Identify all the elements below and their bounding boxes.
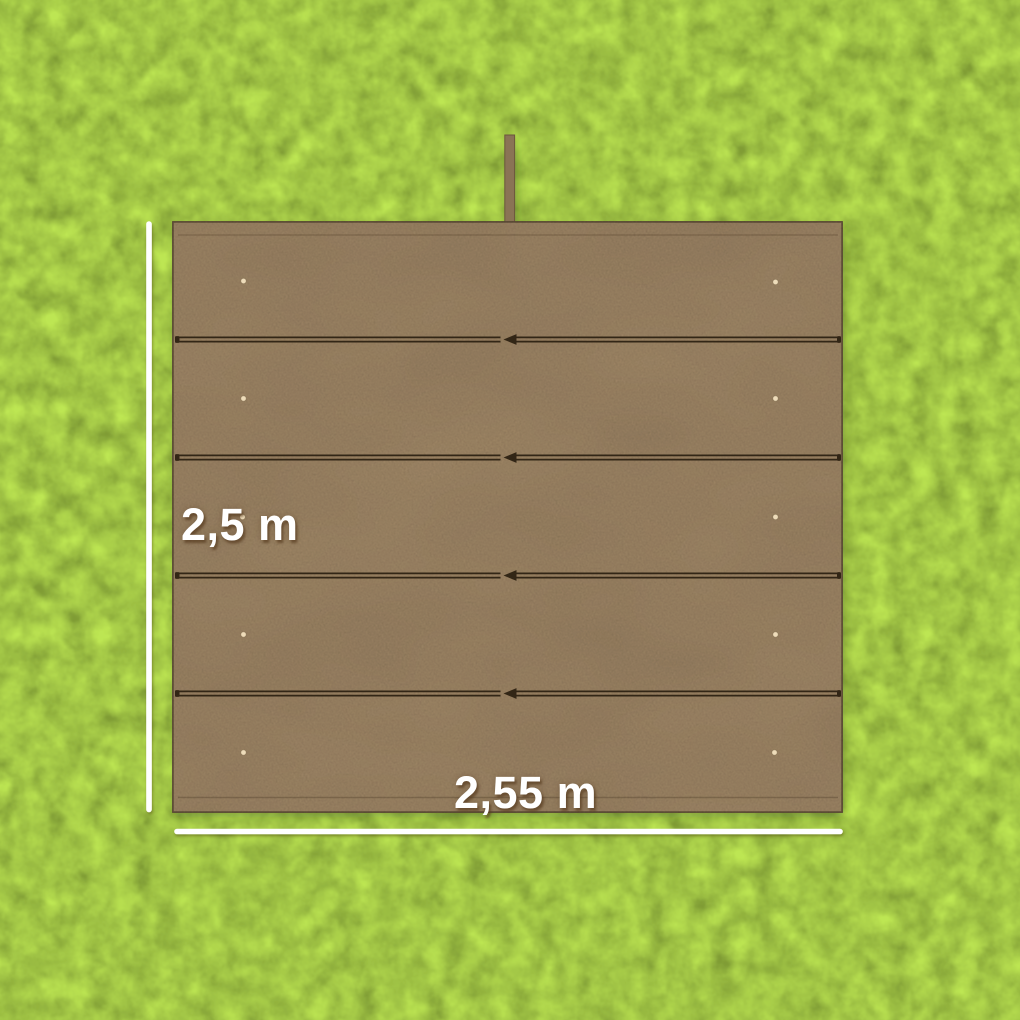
- eyelet: [241, 396, 246, 401]
- seam-left-cap: [175, 336, 180, 343]
- seam-left-cap: [175, 690, 180, 697]
- eyelet: [773, 396, 778, 401]
- eyelet: [773, 632, 778, 637]
- seam-right-cap: [837, 572, 841, 579]
- width-dimension-label: 2,55 m: [454, 770, 597, 815]
- eyelet: [241, 750, 246, 755]
- seam-left-cap: [175, 572, 180, 579]
- eyelet: [241, 632, 246, 637]
- tarp-pole: [505, 135, 515, 227]
- height-dimension-label: 2,5 m: [181, 502, 299, 547]
- tarp-group: [173, 135, 842, 812]
- eyelet: [772, 750, 777, 755]
- eyelet: [241, 278, 246, 283]
- seam-right-cap: [837, 690, 841, 697]
- seam-left-cap: [175, 454, 180, 461]
- eyelet: [773, 279, 778, 284]
- eyelet: [773, 514, 778, 519]
- seam-right-cap: [837, 454, 841, 461]
- seam-right-cap: [837, 336, 841, 343]
- product-dimension-photo: 2,5 m 2,55 m: [0, 0, 1020, 1020]
- scene-canvas: [0, 0, 1020, 1020]
